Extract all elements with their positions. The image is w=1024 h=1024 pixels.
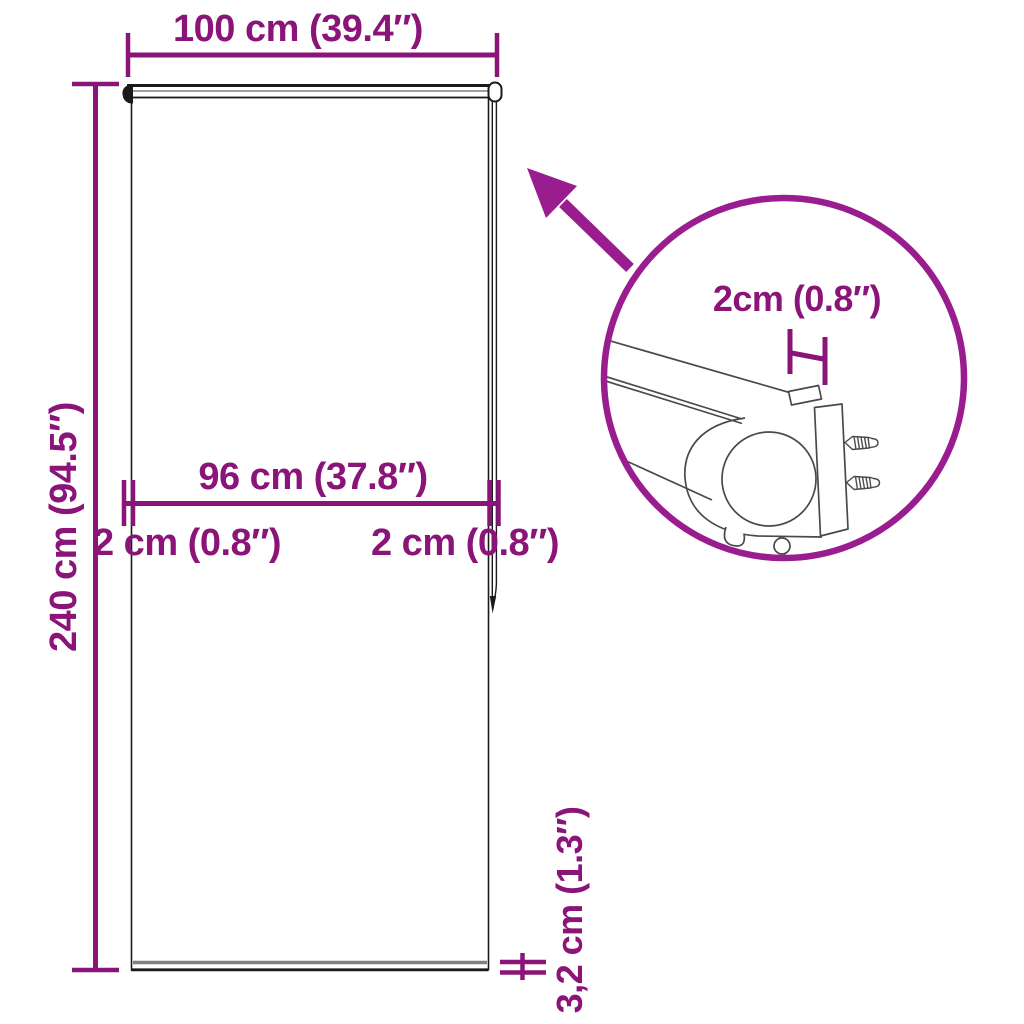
detail-circle — [604, 198, 964, 558]
roller-blind-dimension-diagram: 100 cm (39.4″) 240 cm (94.5″) 96 cm (37.… — [0, 0, 1024, 1024]
chain-beads — [774, 536, 792, 572]
mounting-tab — [789, 386, 822, 406]
total-height-label: 240 cm (94.5″) — [45, 402, 83, 652]
bracket-depth-dimension — [789, 329, 826, 385]
detail-callout — [527, 168, 964, 572]
right-offset-label: 2 cm (0.8″) — [371, 524, 559, 562]
right-end-cap — [489, 83, 502, 102]
cord-tip — [490, 596, 496, 614]
fabric-width-label: 96 cm (37.8″) — [198, 458, 427, 496]
bottom-bar-label: 3,2 cm (1.3″) — [552, 807, 588, 1014]
detail-arrow-icon — [527, 168, 630, 268]
end-cap-outline — [685, 418, 822, 537]
diagram-canvas — [0, 0, 1024, 1024]
bracket-depth-label: 2cm (0.8″) — [713, 281, 881, 317]
bottom-bar-dimension — [500, 953, 546, 980]
cap-foot — [724, 527, 744, 546]
screw-icon — [845, 437, 878, 450]
bracket-plate — [815, 404, 849, 536]
left-offset-label: 2 cm (0.8″) — [93, 524, 281, 562]
bracket-detail-drawing — [604, 340, 880, 572]
screw-icon — [847, 477, 880, 490]
left-end-cap — [122, 85, 133, 104]
total-width-label: 100 cm (39.4″) — [173, 10, 423, 48]
end-cap-inner-circle — [722, 432, 816, 526]
